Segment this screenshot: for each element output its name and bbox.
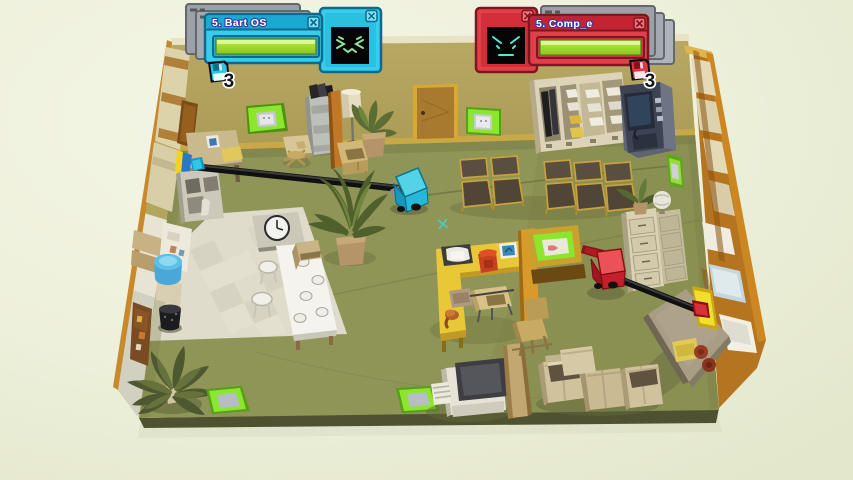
svg-text:3: 3 bbox=[645, 71, 656, 92]
svg-text:5. Comp_e: 5. Comp_e bbox=[536, 18, 593, 30]
svg-text:3: 3 bbox=[224, 71, 235, 92]
svg-text:5. Bart OS: 5. Bart OS bbox=[212, 17, 267, 29]
